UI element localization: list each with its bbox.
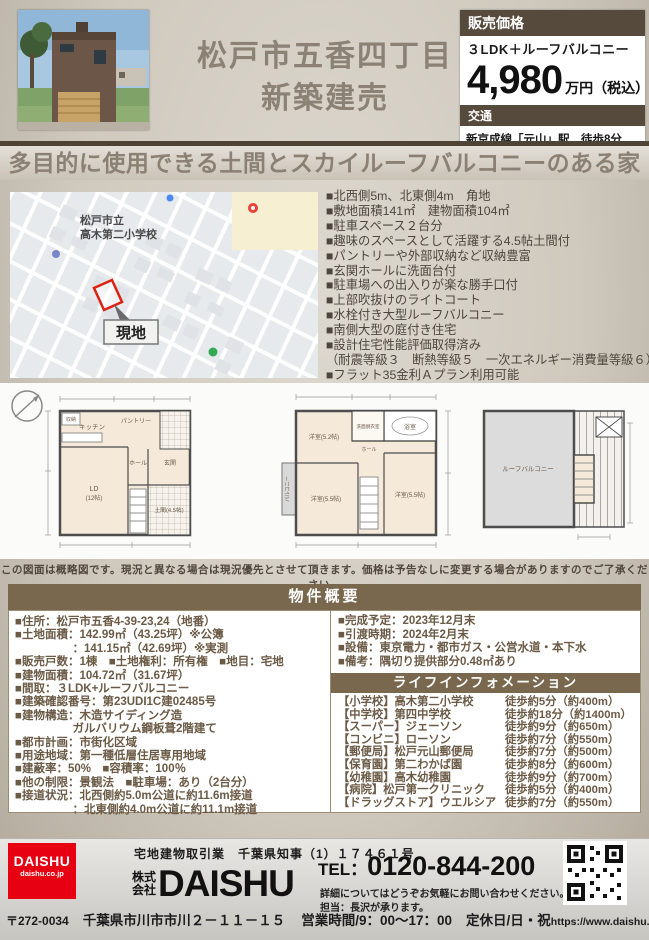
site-label: 現地 [116, 324, 146, 342]
title-line-2: 新築建売 [185, 78, 465, 120]
business-hours: 営業時間/9：00～17：00 [301, 909, 452, 929]
price-label: 販売価格 [460, 10, 645, 36]
map-small-marker-icon [52, 250, 60, 258]
life-info-row: 【幼稚園】高木幼稚園 徒歩約9分（約700m） [338, 772, 633, 785]
room-label-hall: ホール [129, 460, 147, 467]
life-place: 【郵便局】松戸元山郵便局 [338, 746, 505, 759]
map-blue-marker-icon [167, 195, 174, 202]
room-label-washroom: 洗面脱衣室 [357, 423, 380, 430]
overview-line: ■建物構造：木造サイディング造 [15, 710, 324, 723]
company-logo: DAISHU daishu.co.jp [8, 843, 76, 899]
life-place: 【ドラッグストア】ウエルシア [338, 797, 505, 810]
feature-item: ■設計住宅性能評価取得済み [326, 338, 646, 353]
map-park-marker-icon [209, 348, 218, 357]
overview-line: ■住所：松戸市五香4-39-23,24（地番） [15, 616, 324, 629]
house-rendering-image [18, 10, 149, 130]
room-label-balcony: バルコニー [284, 476, 291, 502]
catchphrase-text: 多目的に使用できる土間とスカイルーフバルコニーのある家 [8, 150, 640, 176]
life-info-row: 【ドラッグストア】ウエルシア 徒歩約7分（約550m） [338, 797, 633, 810]
floor-plan-2f: 洋室(5.2帖) 洗面脱衣室 浴室 ホール 洋室(5.5帖) 洋室(5.5帖) … [262, 389, 467, 553]
page-title: 松戸市五香四丁目 新築建売 [185, 36, 465, 120]
feature-list: ■北西側5m、北東側4m 角地 ■敷地面積141㎡ 建物面積104㎡ ■駐車スペ… [326, 189, 646, 383]
room-label-closet: 収納 [66, 416, 76, 423]
overview-line: ■販売戸数：1棟 ■土地権利：所有権 ■地目：宅地 [15, 656, 324, 669]
life-place: 【中学校】第四中学校 [338, 709, 505, 722]
life-info-row: 【小学校】高木第二小学校 徒歩約5分（約400m） [338, 696, 633, 709]
feature-item: ■駐車スペース２台分 [326, 219, 646, 234]
room-label-hall-2f: ホール [361, 447, 376, 453]
feature-item: ■北西側5m、北東側4m 角地 [326, 189, 646, 204]
access-label: 交通 [460, 105, 645, 126]
life-place: 【小学校】高木第二小学校 [338, 696, 505, 709]
room-label-bedroom1: 洋室(5.2帖) [309, 433, 339, 441]
logo-subtext: daishu.co.jp [8, 869, 76, 878]
floor-plan-roof: ルーフバルコニー [478, 393, 646, 545]
catchphrase-banner: 多目的に使用できる土間とスカイルーフバルコニーのある家 [0, 141, 649, 180]
life-info-row: 【病院】松戸第一クリニック 徒歩約5分（約400m） [338, 784, 633, 797]
price-body: ３LDK＋ルーフバルコニー 4,980万円（税込） [460, 36, 645, 105]
map-school-label-line2: 高木第二小学校 [80, 227, 158, 241]
life-distance: 徒歩約5分（約400m） [505, 696, 633, 709]
location-map: 松戸市立 高木第二小学校 現地 [10, 192, 318, 378]
life-info-list: 【小学校】高木第二小学校 徒歩約5分（約400m） 【中学校】第四中学校 徒歩約… [338, 696, 633, 809]
contact-note: 詳細についてはどうぞお気軽にお問い合わせください。 [320, 885, 570, 900]
life-info-row: 【中学校】第四中学校 徒歩約18分（約1400m） [338, 709, 633, 722]
room-label-doma: 土間(4.5帖) [154, 506, 183, 514]
overview-line: ■建物面積：104.72㎡（31.67坪） [15, 670, 324, 683]
map-school-label-line1: 松戸市立 [80, 213, 124, 227]
floor-plan-1f: キッチン パントリー 収納 ホール 玄関 LD (12帖) 土間(4.5帖) [36, 391, 221, 553]
room-label-kitchen: キッチン [79, 423, 105, 431]
overview-line: ：北東側約4.0m公道に約11.1m接道 [15, 804, 324, 817]
logo-text: DAISHU [8, 853, 76, 869]
tel-number: 0120-844-200 [367, 851, 535, 881]
overview-line: ■備考：隅切り提供部分0.48㎡あり [338, 656, 633, 670]
overview-line: ガルバリウム鋼板葺2階建て [15, 723, 324, 736]
overview-right-column: ■完成予定：2023年12月末 ■引渡時期：2024年2月末 ■設備：東京電力・… [331, 611, 640, 812]
property-overview: ■住所：松戸市五香4-39-23,24（地番） ■土地面積：142.99㎡（43… [8, 610, 641, 813]
feature-item: ■駐車場への出入りが楽な勝手口付 [326, 278, 646, 293]
life-info-row: 【コンビニ】ローソン 徒歩約7分（約550m） [338, 734, 633, 747]
price-unit: 万円（税込） [565, 80, 649, 96]
life-distance: 徒歩約7分（約550m） [505, 734, 633, 747]
floor-plans-section: キッチン パントリー 収納 ホール 玄関 LD (12帖) 土間(4.5帖) [0, 383, 649, 559]
room-label-bath: 浴室 [404, 423, 416, 431]
plan-type: ３LDK＋ルーフバルコニー [467, 39, 638, 58]
map-school-area [232, 192, 318, 250]
room-label-pantry: パントリー [121, 418, 151, 425]
qr-code [563, 841, 627, 905]
overview-line: ■他の制限：景観法 ■駐車場：あり（2台分） [15, 777, 324, 790]
room-label-bedroom2: 洋室(5.5帖) [311, 495, 341, 503]
overview-line: ■都市計画：市街化区域 [15, 737, 324, 750]
life-place: 【スーパー】ジェーソン [338, 721, 505, 734]
feature-item: ■趣味のスペースとして活躍する4.5帖土間付 [326, 234, 646, 249]
flyer-page: 松戸市五香四丁目 新築建売 販売価格 ３LDK＋ルーフバルコニー 4,980万円… [0, 0, 649, 940]
feature-item: ■敷地面積141㎡ 建物面積104㎡ [326, 204, 646, 219]
house-photo [18, 10, 149, 130]
overview-line: ■完成予定：2023年12月末 [338, 615, 633, 629]
address-bar: 〒272-0034 千葉県市川市市川２－１１－１５ 営業時間/9：00～17：0… [6, 909, 643, 929]
price-amount: 4,980万円（税込） [467, 58, 638, 103]
company-name-lockup: 株式会社 DAISHU [132, 863, 294, 905]
closed-days: 定休日/日・祝 [466, 909, 551, 929]
life-distance: 徒歩約9分（約700m） [505, 772, 633, 785]
life-distance: 徒歩約8分（約600m） [505, 759, 633, 772]
life-distance: 徒歩約7分（約500m） [505, 746, 633, 759]
overview-line: ■土地面積：142.99㎡（43.25坪）※公簿 [15, 629, 324, 642]
overview-line: ■建築確認番号：第23UDI1C建02485号 [15, 696, 324, 709]
overview-left-column: ■住所：松戸市五香4-39-23,24（地番） ■土地面積：142.99㎡（43… [9, 611, 331, 812]
life-distance: 徒歩約18分（約1400m） [505, 709, 633, 722]
tel-prefix: TEL： [318, 860, 367, 879]
life-info-row: 【郵便局】松戸元山郵便局 徒歩約7分（約500m） [338, 746, 633, 759]
overview-line: ■接道状況：北西側約5.0m公道に約11.6m接道 [15, 790, 324, 803]
feature-item: ■玄関ホールに洗面台付 [326, 264, 646, 279]
life-place: 【病院】松戸第一クリニック [338, 784, 505, 797]
feature-item: ■パントリーや外部収納など収納豊富 [326, 249, 646, 264]
life-info-row: 【保育園】第二わかば園 徒歩約8分（約600m） [338, 759, 633, 772]
life-info-heading: ライフインフォメーション [331, 673, 640, 693]
map-poi-marker-center [251, 206, 255, 210]
phone-number: TEL：0120-844-200 [318, 851, 535, 882]
life-info-row: 【スーパー】ジェーソン 徒歩約9分（約650m） [338, 721, 633, 734]
overview-heading-band: 物件概要 [8, 584, 641, 610]
room-label-ld-size: (12帖) [86, 494, 103, 502]
room-label-roof-balcony: ルーフバルコニー [502, 465, 553, 473]
life-distance: 徒歩約9分（約650m） [505, 721, 633, 734]
postal-code: 〒272-0034 [6, 912, 69, 929]
overview-line: ■建蔽率：50% ■容積率：100％ [15, 763, 324, 776]
room-label-ld: LD [90, 486, 99, 493]
overview-line: ■用途地域：第一種低層住居専用地域 [15, 750, 324, 763]
overview-line: ■引渡時期：2024年2月末 [338, 629, 633, 643]
company-prefix: 株式会社 [132, 871, 158, 897]
life-place: 【保育園】第二わかば園 [338, 759, 505, 772]
feature-item: ■水栓付き大型ルーフバルコニー [326, 308, 646, 323]
title-line-1: 松戸市五香四丁目 [185, 36, 465, 78]
price-value: 4,980 [467, 58, 562, 102]
overview-line: ■設備：東京電力・都市ガス・公営水道・本下水 [338, 642, 633, 656]
feature-item: ■フラット35金利Ａプラン利用可能 [326, 368, 646, 383]
overview-line: ：141.15㎡（42.69坪）※実測 [15, 643, 324, 656]
room-label-bedroom3: 洋室(5.5帖) [395, 491, 425, 499]
life-distance: 徒歩約7分（約550m） [505, 797, 633, 810]
office-address: 千葉県市川市市川２－１１－１５ [83, 909, 286, 929]
life-place: 【コンビニ】ローソン [338, 734, 505, 747]
footer: DAISHU daishu.co.jp 宅地建物取引業 千葉県知事（1）１７４６… [0, 838, 649, 940]
feature-item: ■南側大型の庭付き住宅 [326, 323, 646, 338]
room-label-entrance: 玄関 [164, 459, 176, 467]
life-distance: 徒歩約5分（約400m） [505, 784, 633, 797]
feature-item: ■上部吹抜けのライトコート [326, 293, 646, 308]
feature-item: （耐震等級３ 断熱等級５ 一次エネルギー消費量等級６） [326, 353, 646, 368]
price-box: 販売価格 ３LDK＋ルーフバルコニー 4,980万円（税込） 交通 新京成線「元… [460, 10, 645, 153]
overview-line: ■間取：３LDK+ルーフバルコニー [15, 683, 324, 696]
website-url: https://www.daishu.co.jp/ [551, 916, 649, 928]
company-name: DAISHU [158, 863, 294, 905]
life-place: 【幼稚園】高木幼稚園 [338, 772, 505, 785]
